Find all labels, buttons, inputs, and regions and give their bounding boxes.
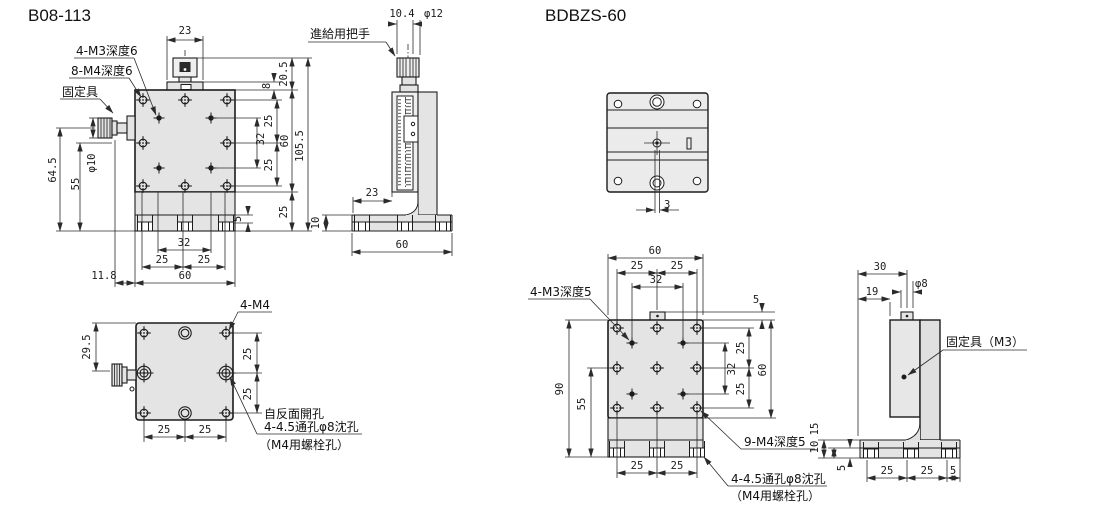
dim-19: 19 bbox=[866, 286, 879, 298]
note-counterbore-1: 自反面開孔 bbox=[264, 407, 324, 421]
knob-center-dot bbox=[184, 68, 187, 71]
dim-25-r1: 25 bbox=[735, 342, 747, 355]
stage-plate bbox=[608, 320, 703, 418]
dim-60-right: 60 bbox=[279, 135, 291, 148]
dim-phi12: φ12 bbox=[424, 8, 443, 20]
label-8-m4: 8-M4深度6 bbox=[71, 63, 133, 78]
label-9-m4-depth5: 9-M4深度5 bbox=[744, 434, 806, 449]
dim-11-8: 11.8 bbox=[91, 270, 116, 282]
b08-113-drawing: B08-113 bbox=[28, 6, 452, 452]
dim-32-top: 32 bbox=[650, 274, 663, 286]
dim-5-tab: 5 bbox=[753, 294, 759, 306]
knob-base-slot bbox=[181, 85, 191, 90]
dim-25-b1: 25 bbox=[156, 254, 169, 266]
dim-25-b1: 25 bbox=[631, 460, 644, 472]
label-4-m3: 4-M3深度6 bbox=[76, 43, 138, 58]
dim-25-b1-bottom: 25 bbox=[158, 424, 171, 436]
bdbzs-side-view: 30 19 φ8 固定具（M3） 15 10 5 25 25 5 bbox=[809, 261, 1027, 482]
dim-55: 55 bbox=[70, 178, 82, 191]
b08-side-view: 10.4 φ12 進給用把手 23 10 60 bbox=[308, 8, 452, 256]
label-feed-handle: 進給用把手 bbox=[310, 27, 370, 41]
label-clamp: 固定具 bbox=[62, 84, 98, 99]
dim-30: 30 bbox=[874, 261, 887, 273]
dim-25-b1-side: 25 bbox=[881, 465, 894, 477]
note-counterbore-2: （M4用螺栓孔） bbox=[730, 488, 820, 503]
clamp-screw-dot bbox=[902, 375, 907, 380]
dim-phi8: φ8 bbox=[915, 278, 928, 290]
technical-drawing-page: B08-113 bbox=[0, 0, 1102, 516]
dim-90: 90 bbox=[554, 383, 566, 396]
dim-25-b2: 25 bbox=[671, 460, 684, 472]
dim-32-bottom: 32 bbox=[178, 237, 191, 249]
b08-front-view: 23 4-M3深度6 8-M4深度6 固定具 64.5 55 φ10 20.5 … bbox=[47, 25, 312, 287]
dim-25-r2-bottom: 25 bbox=[242, 388, 254, 401]
knob-neck-side bbox=[402, 77, 416, 85]
dim-15: 15 bbox=[809, 423, 821, 436]
bdbzs-front-view: 60 25 25 32 4-M3深度5 90 55 5 32 25 25 60 … bbox=[528, 245, 827, 503]
clamp-knob-front bbox=[98, 116, 135, 140]
dim-5-left: 5 bbox=[836, 465, 848, 471]
dim-phi10: φ10 bbox=[86, 154, 98, 173]
dim-25-b2-side: 25 bbox=[921, 465, 934, 477]
dim-23: 23 bbox=[179, 25, 192, 37]
dim-105-5: 105.5 bbox=[294, 130, 306, 162]
dim-25-r1-bottom: 25 bbox=[242, 348, 254, 361]
dim-25-b2-bottom: 25 bbox=[199, 424, 212, 436]
dim-10: 10 bbox=[809, 441, 821, 454]
dim-20-5: 20.5 bbox=[278, 61, 290, 86]
label-clamp-m3: 固定具（M3） bbox=[946, 334, 1024, 349]
dim-60-right: 60 bbox=[757, 364, 769, 377]
dim-60-bottom: 60 bbox=[179, 270, 192, 282]
label-4-m4-bottom: 4-M4 bbox=[240, 298, 270, 312]
dim-60-top: 60 bbox=[649, 245, 662, 257]
tab-dot bbox=[906, 315, 909, 318]
dim-5: 5 bbox=[232, 216, 244, 222]
slide-plate-side bbox=[890, 320, 920, 417]
tab-dot bbox=[656, 315, 659, 318]
dim-64-5: 64.5 bbox=[47, 157, 59, 182]
b08-bottom-view: 4-M4 29.5 25 25 25 25 自反面開孔 4-4.5通孔φ8沈孔 … bbox=[81, 298, 362, 452]
dim-23-side: 23 bbox=[366, 187, 379, 199]
dim-32-right: 32 bbox=[255, 133, 267, 146]
dim-55: 55 bbox=[576, 398, 588, 411]
dim-25-r2: 25 bbox=[735, 383, 747, 396]
drawing-svg: B08-113 bbox=[0, 0, 1102, 516]
knob-neck bbox=[179, 77, 191, 82]
clamp-knob-bottom bbox=[112, 364, 136, 391]
dim-3-top: 3 bbox=[664, 199, 670, 211]
label-4-m3-depth5: 4-M3深度5 bbox=[530, 284, 592, 299]
dim-25-r1: 25 bbox=[263, 115, 275, 128]
dim-5-b-side: 5 bbox=[950, 465, 956, 477]
dim-29-5: 29.5 bbox=[81, 334, 93, 359]
dim-25-b2: 25 bbox=[198, 254, 211, 266]
column-side bbox=[920, 320, 940, 440]
dim-25-base: 25 bbox=[278, 206, 290, 219]
knob-washer-side bbox=[400, 85, 418, 92]
feed-knob-side bbox=[397, 58, 419, 77]
dim-10-side: 10 bbox=[310, 217, 322, 230]
bdbzs-top-view: 3 bbox=[607, 93, 708, 213]
dim-25-t1: 25 bbox=[631, 260, 644, 272]
vernier-window bbox=[404, 116, 418, 142]
dim-60-side: 60 bbox=[396, 239, 409, 251]
note-counterbore-2: 4-4.5通孔φ8沈孔 bbox=[264, 419, 359, 434]
dim-10-4: 10.4 bbox=[389, 8, 414, 20]
note-counterbore-1: 4-4.5通孔φ8沈孔 bbox=[731, 471, 826, 486]
dim-8: 8 bbox=[261, 83, 273, 89]
dim-25-r2: 25 bbox=[263, 159, 275, 172]
note-counterbore-3: （M4用螺栓孔） bbox=[259, 437, 349, 452]
product-title-b08-113: B08-113 bbox=[28, 6, 91, 25]
dim-32-right: 32 bbox=[726, 363, 738, 376]
product-title-bdbzs-60: BDBZS-60 bbox=[545, 6, 626, 25]
column-side bbox=[418, 92, 437, 215]
scale-ticks bbox=[398, 99, 411, 187]
bdbzs-60-drawing: BDBZS-60 3 bbox=[528, 6, 1027, 503]
dim-25-t2: 25 bbox=[671, 260, 684, 272]
